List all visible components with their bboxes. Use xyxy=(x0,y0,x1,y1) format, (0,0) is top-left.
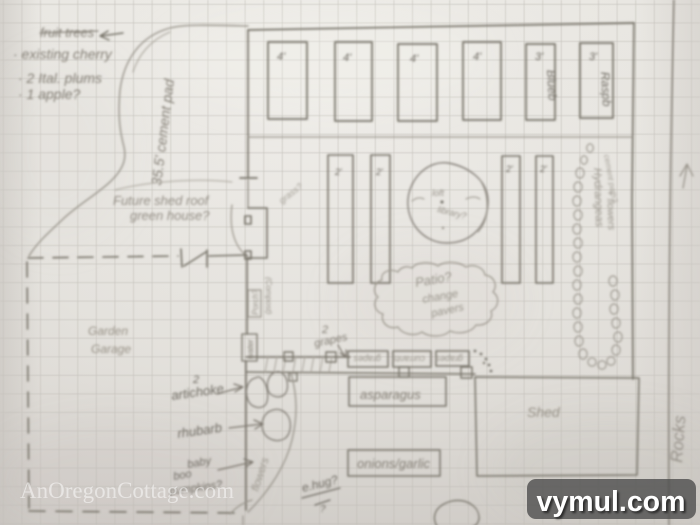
svg-text:Garage: Garage xyxy=(91,342,131,356)
svg-text:2': 2' xyxy=(334,167,342,177)
svg-text:Rocks: Rocks xyxy=(667,414,689,463)
svg-text:Blueb: Blueb xyxy=(544,69,560,101)
svg-text:(Compost): (Compost) xyxy=(264,277,273,315)
svg-text:4': 4' xyxy=(410,53,419,65)
svg-text:green house?: green house? xyxy=(130,208,210,223)
svg-text:4': 4' xyxy=(277,51,286,63)
svg-text:asparagus: asparagus xyxy=(360,387,421,402)
svg-text:4': 4' xyxy=(473,51,482,63)
svg-text:grapes: grapes xyxy=(435,354,463,364)
svg-text:Garden: Garden xyxy=(88,324,128,338)
svg-text:2': 2' xyxy=(505,164,513,174)
svg-text:2': 2' xyxy=(539,164,547,174)
svg-text:Raspb: Raspb xyxy=(598,71,614,107)
svg-text:· existing cherry: · existing cherry xyxy=(13,46,113,62)
svg-text:currants: currants xyxy=(392,354,425,364)
svg-text:Hydrangeas: Hydrangeas xyxy=(591,168,605,228)
svg-text:3': 3' xyxy=(589,51,598,63)
svg-text:loft: loft xyxy=(432,188,445,198)
svg-text:2': 2' xyxy=(375,167,383,177)
svg-text:Porch?: Porch? xyxy=(251,289,260,315)
svg-text:2: 2 xyxy=(321,324,328,336)
svg-text:· 2 Ital. plums: · 2 Ital. plums xyxy=(18,70,102,86)
svg-text:Future shed roof: Future shed roof xyxy=(113,193,210,208)
svg-text:4': 4' xyxy=(343,52,352,64)
svg-text:· 1 apple?: · 1 apple? xyxy=(18,86,80,102)
svg-text:?: ? xyxy=(320,504,326,515)
svg-text:vymul.com: vymul.com xyxy=(537,486,686,518)
svg-text:water: water xyxy=(246,339,255,359)
svg-text:Shed: Shed xyxy=(527,404,561,420)
svg-text:AnOregonCottage.com: AnOregonCottage.com xyxy=(20,478,234,503)
svg-text:3': 3' xyxy=(535,51,544,63)
svg-text:grapes: grapes xyxy=(353,354,381,364)
svg-text:onions/garlic: onions/garlic xyxy=(357,456,430,471)
